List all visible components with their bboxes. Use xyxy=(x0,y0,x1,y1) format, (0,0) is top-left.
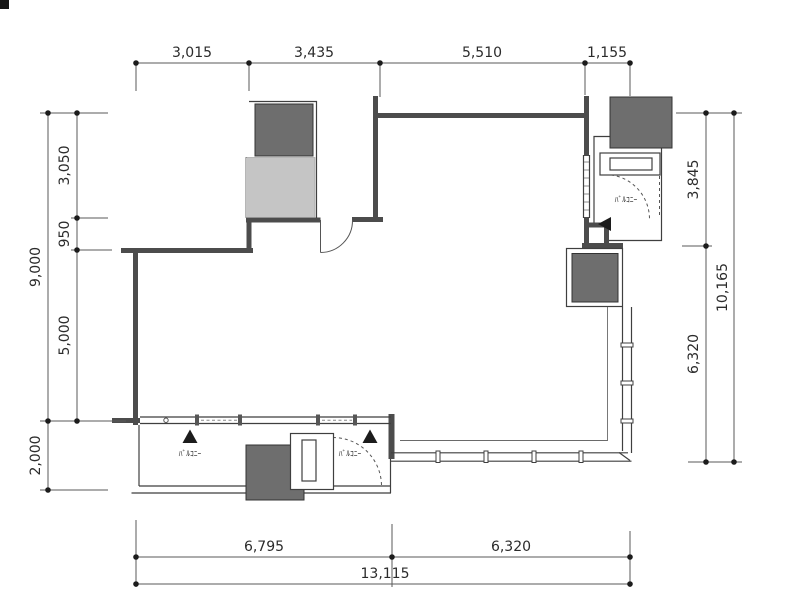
window-mullion xyxy=(484,451,488,463)
dim-label-top-1: 3,015 xyxy=(172,45,212,61)
column-east xyxy=(572,254,618,303)
dim-label-left-2000: 2,000 xyxy=(28,435,44,475)
dim-dot xyxy=(377,60,383,66)
dim-dot xyxy=(133,581,139,587)
dim-dot xyxy=(703,459,709,465)
corner-mark xyxy=(0,0,9,9)
window-post xyxy=(316,415,320,426)
window-post xyxy=(353,415,357,426)
dim-label-top-2: 3,435 xyxy=(294,45,334,61)
plan-background xyxy=(0,0,800,616)
dim-label-left-5000: 5,000 xyxy=(57,315,73,355)
dim-label-top-4: 1,155 xyxy=(587,45,627,61)
dim-label-bottom-13115: 13,115 xyxy=(361,566,410,582)
dim-label-bottom-6795: 6,795 xyxy=(244,539,284,555)
floor-plan-page: ﾊﾞﾙｺﾆｰ ﾊﾞﾙｺﾆｰ ﾊﾞﾙｺﾆｰ xyxy=(0,0,800,616)
dim-dot xyxy=(133,554,139,560)
dim-dot xyxy=(74,418,80,424)
window-mullion xyxy=(621,381,633,385)
dim-dot xyxy=(45,418,51,424)
window-mullion xyxy=(436,451,440,463)
balcony-label-right: ﾊﾞﾙｺﾆｰ xyxy=(615,195,638,204)
dim-dot xyxy=(731,110,737,116)
column-northeast xyxy=(610,97,672,148)
dim-dot xyxy=(74,215,80,221)
dim-label-right-6320: 6,320 xyxy=(686,334,702,374)
dim-dot xyxy=(74,247,80,253)
floor-plan-drawing: ﾊﾞﾙｺﾆｰ ﾊﾞﾙｺﾆｰ ﾊﾞﾙｺﾆｰ xyxy=(0,0,800,616)
window-mullion xyxy=(621,419,633,423)
dim-label-right-3845: 3,845 xyxy=(686,159,702,199)
dim-dot xyxy=(582,60,588,66)
right-balcony-unit-inner xyxy=(610,158,652,170)
window-pivot xyxy=(164,418,168,422)
dim-dot xyxy=(731,459,737,465)
dim-label-left-950: 950 xyxy=(57,221,73,248)
dim-dot xyxy=(74,110,80,116)
balcony-label-center: ﾊﾞﾙｺﾆｰ xyxy=(339,449,362,458)
dim-label-right-10165: 10,165 xyxy=(715,263,731,312)
column-northwest xyxy=(255,104,313,156)
balcony-label-left: ﾊﾞﾙｺﾆｰ xyxy=(179,449,202,458)
dim-dot xyxy=(246,60,252,66)
dim-dot xyxy=(703,243,709,249)
dim-dot xyxy=(703,110,709,116)
dim-label-bottom-6320: 6,320 xyxy=(491,539,531,555)
dim-dot xyxy=(627,554,633,560)
window-post xyxy=(195,415,199,426)
window-mullion xyxy=(621,343,633,347)
window-mullion xyxy=(532,451,536,463)
dim-label-left-3050: 3,050 xyxy=(57,145,73,185)
dim-label-left-9000: 9,000 xyxy=(28,247,44,287)
dim-dot xyxy=(627,60,633,66)
dim-dot xyxy=(627,581,633,587)
dim-dot xyxy=(389,554,395,560)
dim-label-top-3: 5,510 xyxy=(462,45,502,61)
dim-dot xyxy=(45,110,51,116)
window-post xyxy=(238,415,242,426)
shaft-area xyxy=(246,158,316,218)
window-mullion xyxy=(579,451,583,463)
dim-dot xyxy=(45,487,51,493)
dim-dot xyxy=(133,60,139,66)
bottom-balcony-unit-inner xyxy=(302,440,316,481)
